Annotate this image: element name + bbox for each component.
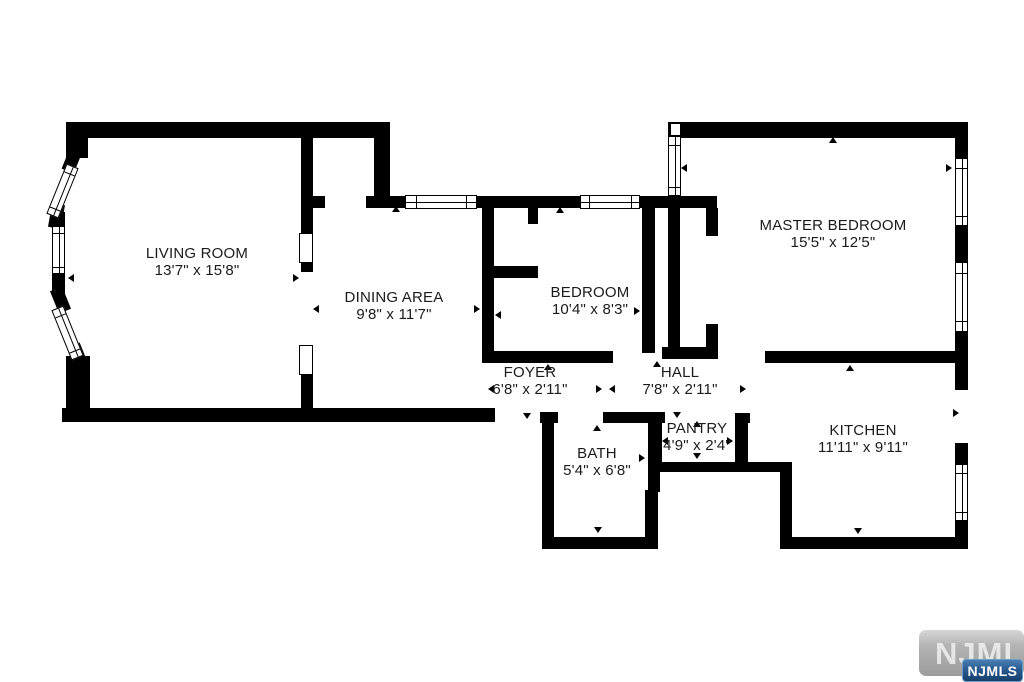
dimension-tick bbox=[596, 385, 602, 393]
dimension-tick bbox=[854, 528, 862, 534]
wall-segment bbox=[642, 208, 655, 353]
room-name: LIVING ROOM bbox=[146, 245, 248, 262]
dimension-tick bbox=[596, 353, 604, 359]
dimension-tick bbox=[313, 305, 319, 313]
dimension-tick bbox=[953, 409, 959, 417]
wall-segment bbox=[482, 351, 613, 363]
room-name: BATH bbox=[563, 445, 631, 462]
dimension-tick bbox=[556, 207, 564, 213]
dimension-tick bbox=[594, 527, 602, 533]
door-jamb-marker bbox=[299, 345, 313, 375]
wall-segment bbox=[780, 537, 968, 549]
window-symbol bbox=[580, 195, 640, 209]
room-dimensions: 7'8" x 2'11" bbox=[642, 381, 717, 398]
dimension-tick bbox=[495, 311, 501, 319]
wall-segment bbox=[955, 363, 968, 390]
wall-segment bbox=[780, 462, 792, 549]
room-name: BEDROOM bbox=[551, 284, 630, 301]
door-jamb-marker bbox=[299, 233, 313, 263]
room-dimensions: 6'8" x 2'11" bbox=[492, 381, 567, 398]
wall-segment bbox=[955, 225, 968, 263]
dimension-tick bbox=[846, 365, 854, 371]
floor-plan-structure bbox=[0, 0, 1024, 682]
dimension-tick bbox=[523, 413, 531, 419]
window-mullion bbox=[53, 267, 64, 268]
dimension-tick bbox=[609, 385, 615, 393]
room-dimensions: 9'8" x 11'7" bbox=[345, 306, 444, 323]
room-label-pantry: PANTRY 4'9" x 2'4" bbox=[663, 420, 731, 454]
window-mullion bbox=[631, 196, 632, 208]
wall-segment bbox=[662, 347, 718, 359]
window-symbol bbox=[52, 226, 65, 274]
wall-segment bbox=[648, 462, 660, 492]
dimension-tick bbox=[293, 274, 299, 282]
dimension-tick bbox=[68, 274, 74, 282]
wall-segment bbox=[62, 408, 495, 422]
dimension-tick bbox=[829, 137, 837, 143]
wall-segment bbox=[301, 262, 313, 272]
dimension-tick bbox=[392, 206, 400, 212]
window-mullion bbox=[956, 216, 967, 217]
dimension-tick bbox=[474, 305, 480, 313]
wall-segment bbox=[668, 122, 968, 138]
wall-segment bbox=[366, 196, 390, 208]
dimension-tick bbox=[393, 412, 401, 418]
wall-segment bbox=[645, 490, 658, 549]
room-label-living-room: LIVING ROOM 13'7" x 15'8" bbox=[146, 245, 248, 279]
dimension-tick bbox=[196, 412, 204, 418]
dimension-tick bbox=[196, 124, 204, 130]
wall-segment bbox=[735, 423, 748, 462]
njmls-badge-text: NJMLS bbox=[968, 663, 1018, 679]
room-name: PANTRY bbox=[663, 420, 731, 437]
dimension-tick bbox=[639, 454, 645, 462]
dimension-tick bbox=[946, 164, 952, 172]
wall-segment bbox=[80, 122, 390, 138]
wall-segment bbox=[301, 138, 313, 234]
room-dimensions: 11'11" x 9'11" bbox=[818, 439, 908, 456]
window-mullion bbox=[956, 273, 967, 274]
wall-segment bbox=[603, 412, 665, 423]
room-label-dining-area: DINING AREA 9'8" x 11'7" bbox=[345, 289, 444, 323]
room-dimensions: 10'4" x 8'3" bbox=[551, 301, 630, 318]
dimension-tick bbox=[740, 385, 746, 393]
wall-segment bbox=[482, 196, 494, 363]
dimension-tick bbox=[673, 412, 681, 418]
dimension-tick bbox=[634, 307, 640, 315]
room-dimensions: 15'5" x 12'5" bbox=[760, 234, 907, 251]
wall-segment bbox=[374, 138, 390, 204]
wall-segment bbox=[765, 351, 968, 363]
room-name: FOYER bbox=[492, 364, 567, 381]
window-mullion bbox=[669, 187, 680, 188]
window-mullion bbox=[53, 233, 64, 234]
wall-segment bbox=[706, 208, 718, 236]
window-mullion bbox=[956, 512, 967, 513]
window-symbol bbox=[955, 158, 968, 226]
room-name: MASTER BEDROOM bbox=[760, 217, 907, 234]
wall-segment bbox=[668, 196, 680, 357]
room-label-foyer: FOYER 6'8" x 2'11" bbox=[492, 364, 567, 398]
window-symbol bbox=[405, 195, 477, 209]
dimension-tick bbox=[546, 457, 552, 465]
room-label-master-bedroom: MASTER BEDROOM 15'5" x 12'5" bbox=[760, 217, 907, 251]
window-mullion bbox=[466, 196, 467, 208]
wall-segment bbox=[482, 266, 538, 278]
room-label-bath: BATH 5'4" x 6'8" bbox=[563, 445, 631, 479]
room-name: DINING AREA bbox=[345, 289, 444, 306]
window-mullion bbox=[956, 473, 967, 474]
room-label-bedroom: BEDROOM 10'4" x 8'3" bbox=[551, 284, 630, 318]
room-label-hall: HALL 7'8" x 2'11" bbox=[642, 364, 717, 398]
dimension-tick bbox=[681, 164, 687, 172]
window-mullion bbox=[589, 196, 590, 208]
room-label-kitchen: KITCHEN 11'11" x 9'11" bbox=[818, 422, 908, 456]
wall-segment bbox=[542, 537, 658, 549]
wall-segment bbox=[955, 138, 968, 160]
dimension-tick bbox=[593, 425, 601, 431]
room-dimensions: 5'4" x 6'8" bbox=[563, 462, 631, 479]
window-mullion bbox=[956, 321, 967, 322]
door-jamb-marker bbox=[670, 123, 681, 136]
wall-segment bbox=[735, 413, 750, 423]
wall-segment bbox=[528, 208, 538, 224]
wall-segment bbox=[653, 462, 792, 472]
window-mullion bbox=[669, 145, 680, 146]
wall-segment bbox=[955, 443, 968, 465]
window-symbol bbox=[955, 464, 968, 521]
room-dimensions: 4'9" x 2'4" bbox=[663, 437, 731, 454]
window-symbol bbox=[51, 306, 83, 361]
room-name: HALL bbox=[642, 364, 717, 381]
room-name: KITCHEN bbox=[818, 422, 908, 439]
wall-segment bbox=[301, 374, 313, 408]
window-symbol bbox=[955, 262, 968, 332]
dimension-tick bbox=[831, 355, 839, 361]
room-dimensions: 13'7" x 15'8" bbox=[146, 262, 248, 279]
window-mullion bbox=[416, 196, 417, 208]
njmls-badge: NJMLS bbox=[962, 659, 1023, 682]
window-mullion bbox=[956, 168, 967, 169]
wall-segment bbox=[542, 413, 554, 549]
floor-plan: LIVING ROOM 13'7" x 15'8" DINING AREA 9'… bbox=[0, 0, 1024, 682]
window-symbol bbox=[668, 136, 681, 196]
